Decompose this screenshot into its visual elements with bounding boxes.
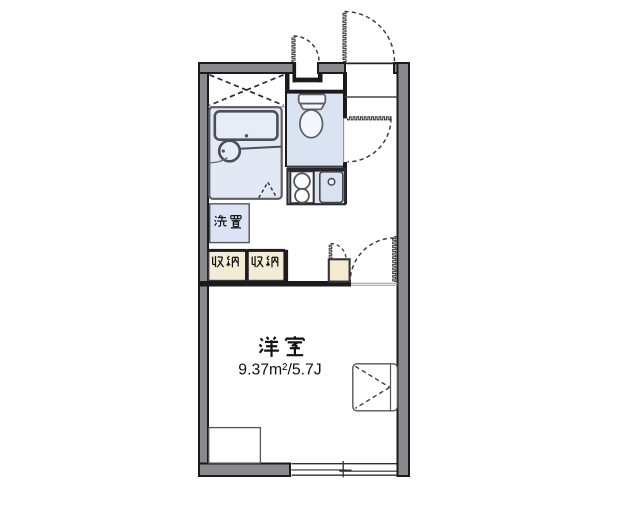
svg-text:9.37m²/5.7J: 9.37m²/5.7J [238, 362, 321, 379]
